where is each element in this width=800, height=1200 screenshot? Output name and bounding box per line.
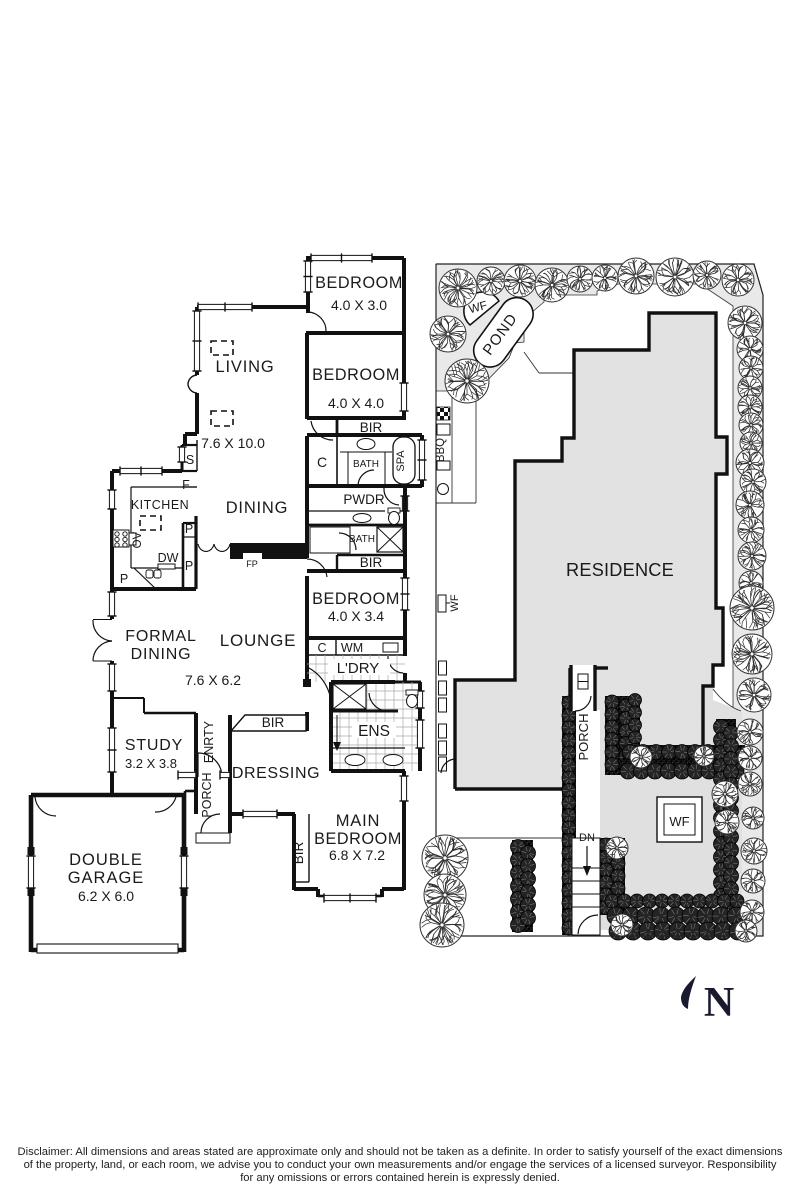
svg-text:L'DRY: L'DRY bbox=[337, 660, 380, 677]
svg-text:WF: WF bbox=[449, 594, 461, 611]
svg-text:DW: DW bbox=[158, 551, 179, 565]
svg-text:OV: OV bbox=[132, 531, 144, 548]
svg-text:MAIN: MAIN bbox=[336, 812, 380, 830]
svg-text:ENS: ENS bbox=[358, 723, 390, 740]
svg-text:STUDY: STUDY bbox=[125, 737, 183, 754]
svg-text:P: P bbox=[185, 522, 193, 536]
svg-text:FORMAL: FORMAL bbox=[125, 628, 196, 645]
svg-text:WM: WM bbox=[341, 641, 363, 655]
svg-text:BIR: BIR bbox=[360, 420, 383, 435]
svg-text:S: S bbox=[186, 453, 194, 467]
svg-text:BEDROOM: BEDROOM bbox=[314, 830, 402, 848]
svg-text:RESIDENCE: RESIDENCE bbox=[566, 560, 674, 580]
svg-text:WF: WF bbox=[669, 814, 689, 829]
svg-text:LOUNGE: LOUNGE bbox=[220, 631, 297, 650]
svg-text:BATH: BATH bbox=[349, 534, 375, 545]
svg-text:KITCHEN: KITCHEN bbox=[131, 498, 189, 512]
svg-text:BEDROOM: BEDROOM bbox=[315, 274, 403, 292]
svg-text:P: P bbox=[120, 572, 128, 586]
svg-text:BBQ: BBQ bbox=[435, 438, 447, 462]
svg-text:3.2 X 3.8: 3.2 X 3.8 bbox=[125, 756, 177, 771]
svg-text:BEDROOM: BEDROOM bbox=[312, 366, 400, 384]
svg-text:of the property, land, or each: of the property, land, or each room, we … bbox=[24, 1159, 777, 1171]
svg-text:4.0 X 3.4: 4.0 X 3.4 bbox=[328, 608, 384, 624]
svg-text:F: F bbox=[182, 478, 190, 492]
svg-text:C: C bbox=[317, 641, 326, 655]
svg-text:BIR: BIR bbox=[262, 715, 285, 730]
svg-text:DRESSING: DRESSING bbox=[232, 765, 320, 782]
svg-text:BIR: BIR bbox=[360, 555, 383, 570]
svg-text:6.8 X 7.2: 6.8 X 7.2 bbox=[329, 847, 385, 863]
svg-text:BEDROOM: BEDROOM bbox=[312, 590, 400, 608]
svg-text:FP: FP bbox=[246, 559, 258, 569]
svg-text:BIR: BIR bbox=[291, 842, 306, 865]
svg-text:DINING: DINING bbox=[226, 499, 289, 517]
svg-text:DN: DN bbox=[579, 832, 595, 844]
svg-text:N: N bbox=[704, 980, 734, 1026]
svg-text:7.6 X 6.2: 7.6 X 6.2 bbox=[185, 672, 241, 688]
svg-text:DINING: DINING bbox=[131, 646, 192, 663]
svg-text:ENRTY: ENRTY bbox=[202, 720, 216, 763]
svg-text:for any omissions or errors co: for any omissions or errors contained he… bbox=[240, 1172, 560, 1184]
svg-text:C: C bbox=[317, 454, 327, 470]
svg-text:PORCH: PORCH bbox=[200, 772, 214, 817]
svg-text:BATH: BATH bbox=[353, 459, 379, 470]
svg-text:6.2 X 6.0: 6.2 X 6.0 bbox=[78, 888, 134, 904]
svg-text:SPA: SPA bbox=[395, 450, 407, 472]
svg-text:PWDR: PWDR bbox=[343, 492, 384, 507]
svg-text:4.0 X 3.0: 4.0 X 3.0 bbox=[331, 297, 387, 313]
svg-text:PORCH: PORCH bbox=[576, 714, 591, 761]
svg-text:DOUBLE: DOUBLE bbox=[69, 851, 143, 869]
svg-text:LIVING: LIVING bbox=[216, 358, 275, 376]
svg-text:P: P bbox=[185, 559, 193, 573]
svg-text:7.6 X 10.0: 7.6 X 10.0 bbox=[201, 435, 265, 451]
svg-text:GARAGE: GARAGE bbox=[68, 869, 145, 887]
svg-text:Disclaimer: All dimensions and: Disclaimer: All dimensions and areas sta… bbox=[18, 1146, 783, 1158]
svg-text:4.0 X 4.0: 4.0 X 4.0 bbox=[328, 395, 384, 411]
